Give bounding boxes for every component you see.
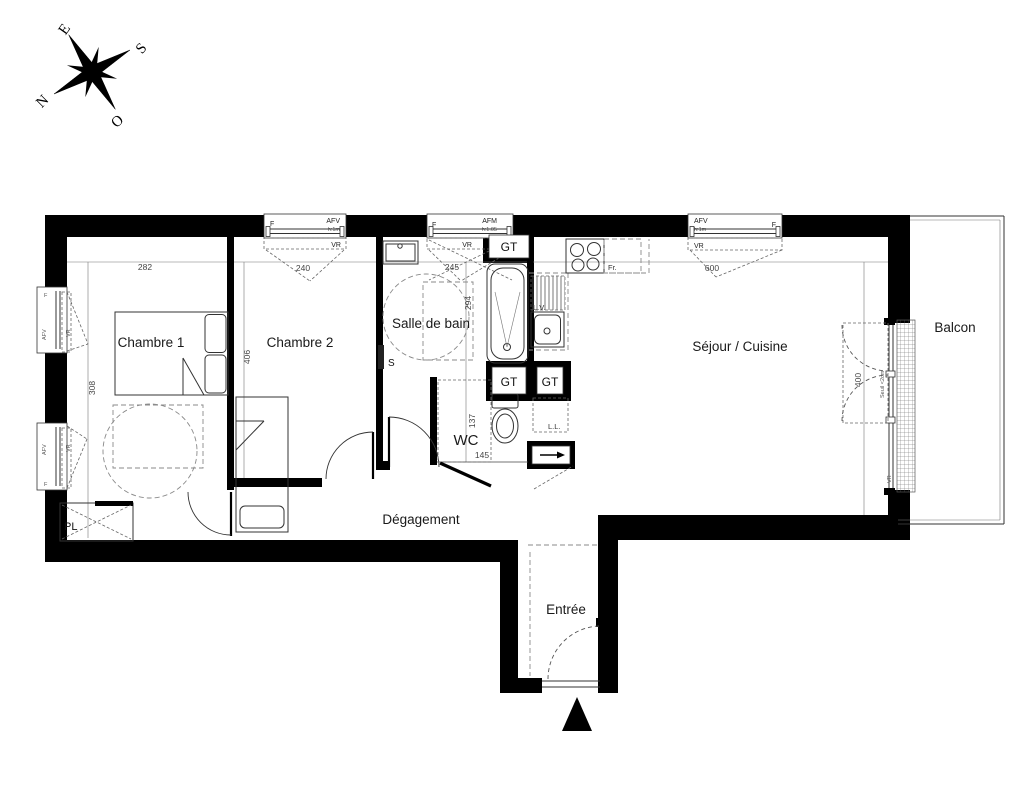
label-chambre2: Chambre 2 [267,335,334,350]
door-chambre2-swing [326,432,373,479]
compass-s: S [133,40,150,57]
burner [587,258,599,270]
dim-sejour-w: 600 [705,263,719,273]
door-chambre1-swing [188,492,231,535]
window-vr-label: VR [331,242,341,249]
window-vr-label: VR [462,242,472,249]
clearance-ch1 [113,405,203,468]
label-degagement: Dégagement [382,512,460,527]
window-type-label: AFV [326,218,340,225]
entrance-arrow [562,697,592,731]
pillow [240,506,284,528]
window-vr-label: VR [66,329,72,337]
wall-right-lower [888,490,910,540]
window-left-1: F AFV VR [37,287,88,353]
label-entree: Entrée [546,602,586,617]
burner [588,243,601,256]
floor-plan: N S E O [0,0,1030,800]
dim-baie: 400 [853,373,863,387]
compass-e: E [56,21,74,38]
compass-o: O [108,112,127,131]
sink-basin [535,315,561,344]
wall-left [45,215,67,562]
dim-wc-d: 137 [467,414,477,428]
radiator-label: S [388,358,395,369]
baie-vitree: Seuil <2cm VR 400 [842,318,895,495]
dim-sdb-w: 245 [445,262,459,272]
dim-wc-w: 145 [475,450,489,460]
floor-plan-canvas: N S E O [0,0,1030,800]
label-wc: WC [454,432,479,449]
burner [572,259,584,271]
wall-bottom-left [45,540,518,562]
door-entree-swing [548,626,601,679]
label-sdb: Salle de bain [392,316,470,331]
kitchen: Fr. L.V. [529,239,649,350]
dishwasher-label: L.V. [533,303,546,312]
window-f-label: F [772,222,776,229]
towel-radiator [378,345,384,369]
balcony-outline [897,216,1004,524]
door-entree-hinge [596,618,604,627]
pillow [205,355,226,393]
balcony-threshold-hatch [897,320,915,492]
washer-label: L.L. [548,422,561,431]
sink [531,312,564,347]
window-f-label: F [270,221,274,228]
wall-wc-west [430,377,437,465]
seuil-label: Seuil <2cm [880,370,886,398]
wall-ch2-south [234,478,322,487]
gt1-label: GT [501,240,518,254]
window-type-label: AFV [42,444,48,455]
wall-entry-left [500,550,518,693]
window-type-label: AFM [482,218,497,225]
dim-sdb-d: 294 [463,296,473,310]
fridge-label: Fr. [608,263,617,272]
compass-rose: N S E O [33,21,150,131]
dim-ch1-w: 282 [138,262,152,272]
bed-chambre1 [115,312,228,395]
burner [571,244,584,257]
window-type-label: AFV [694,218,708,225]
wall-sejour-bottom [615,515,910,540]
window-top-sejour: AFV h:1m F VR [688,214,782,277]
window-height-label: h:1m [328,227,341,233]
dim-ch2-w: 240 [296,263,310,273]
dim-ch2-d: 406 [242,350,252,364]
window-vr-label: VR [887,475,893,483]
label-pl: PL [64,521,77,533]
bathroom: S [378,241,528,462]
window-type-label: AFV [42,329,48,340]
door-wc-leaf [440,463,491,486]
door-sejour-dashed [534,466,573,489]
label-chambre1: Chambre 1 [118,335,185,350]
window-vr-label: VR [66,444,72,452]
bathtub [487,264,528,363]
gt2-label: GT [501,375,518,389]
dimension-texts: 282 240 245 600 308 406 294 137 145 [87,262,719,460]
window-height-label: h:1.05 [482,227,497,233]
gt3-label: GT [542,375,559,389]
closet-door [95,501,133,506]
pillow [205,315,226,353]
window-vr-label: VR [694,243,704,250]
wall-right-upper [888,237,910,323]
window-height-label: h:1m [694,227,707,233]
turning-circle-ch1 [103,404,197,498]
vanity-basin [386,244,415,261]
label-balcon: Balcon [934,320,975,335]
dimension-lines [67,262,888,538]
label-sejour: Séjour / Cuisine [692,339,787,354]
wall-entry-sill-left [515,678,542,693]
window-left-2: AFV F VR [37,423,87,490]
sink-drain [544,328,550,334]
toilet-bowl-inner [497,414,514,438]
dim-ch1-d: 308 [87,381,97,395]
compass-n: N [33,92,52,111]
